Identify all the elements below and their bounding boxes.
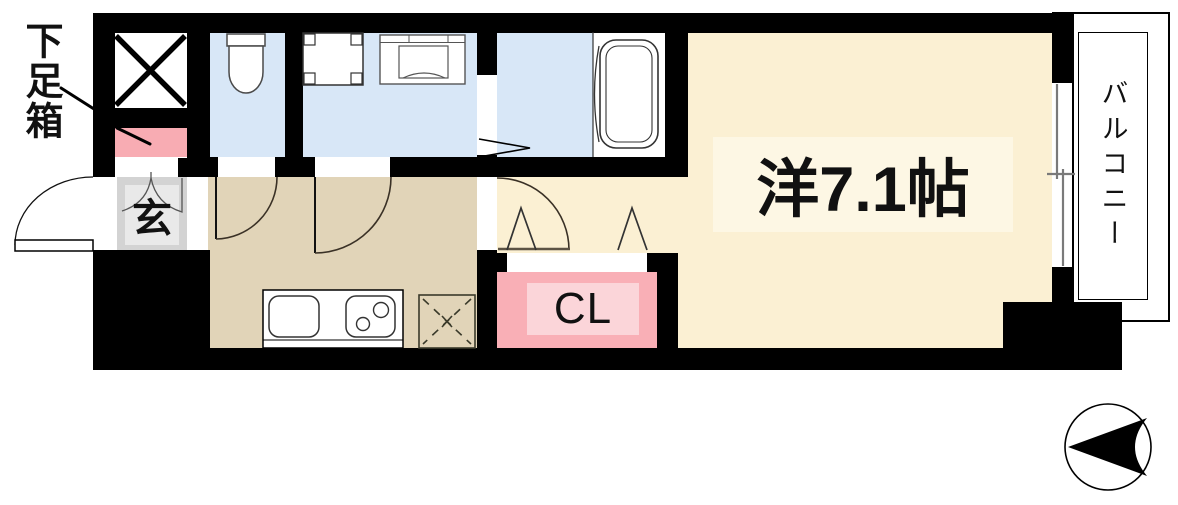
shoe-box-area <box>113 128 188 157</box>
wall-bathroom-mainroom <box>665 13 688 177</box>
wall-under-bathroom <box>477 157 688 177</box>
kitchen-area <box>208 177 477 350</box>
bathtub-area <box>593 32 667 157</box>
wall-bottom <box>93 348 1003 370</box>
bathroom <box>497 32 593 157</box>
closet-opening <box>507 253 647 272</box>
shoe-box-label: 下足箱 <box>13 16 68 146</box>
closet-label: CL <box>527 283 639 335</box>
wall-kitchen-closet <box>477 250 497 350</box>
wall-shaft-right <box>187 33 210 160</box>
wall-right-upper <box>1052 12 1073 83</box>
wall-closet-jamb-right <box>647 253 657 272</box>
wall-left-upper <box>93 33 115 177</box>
wall-toilet-washroom <box>285 33 303 157</box>
wall-right-lower <box>1052 267 1073 302</box>
main-room-label: 洋7.1帖 <box>713 137 1013 232</box>
washroom <box>303 32 477 157</box>
wall-closet-right <box>657 253 678 348</box>
compass-north-icon <box>1065 404 1151 490</box>
toilet-door-opening <box>218 157 275 177</box>
floor-plan: 下足箱 玄 CL 洋7.1帖 バルコニー <box>0 0 1178 505</box>
entrance-door-icon <box>15 177 93 251</box>
wall-bottom-right-block <box>1003 302 1122 370</box>
wall-under-shaft <box>113 108 188 128</box>
wall-top <box>93 13 1073 33</box>
elevator-shaft-room <box>113 33 188 108</box>
bathroom-door-opening <box>477 75 497 155</box>
wall-closet-jamb-left <box>497 253 507 272</box>
toilet-room <box>208 32 285 157</box>
washroom-door-opening <box>315 157 390 177</box>
balcony-label: バルコニー <box>1078 32 1148 300</box>
wall-entrance-top-right <box>178 158 210 177</box>
entrance-label: 玄 <box>117 177 187 253</box>
